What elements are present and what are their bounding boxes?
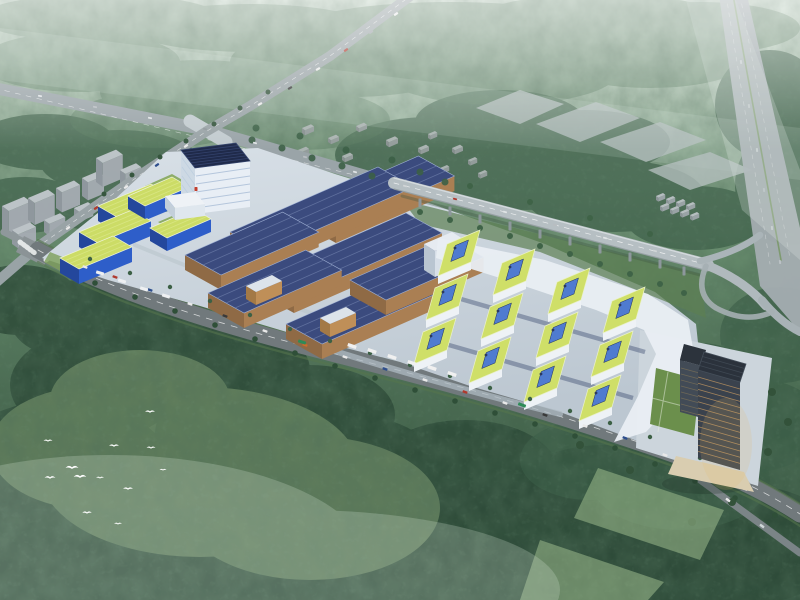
scene-canvas — [0, 0, 800, 600]
top-fog — [0, 0, 800, 150]
scene-root — [0, 0, 800, 600]
tower-glow — [700, 398, 752, 490]
hq-entrance-accent — [195, 187, 198, 191]
aerial-industrial-park-rendering — [0, 0, 800, 600]
